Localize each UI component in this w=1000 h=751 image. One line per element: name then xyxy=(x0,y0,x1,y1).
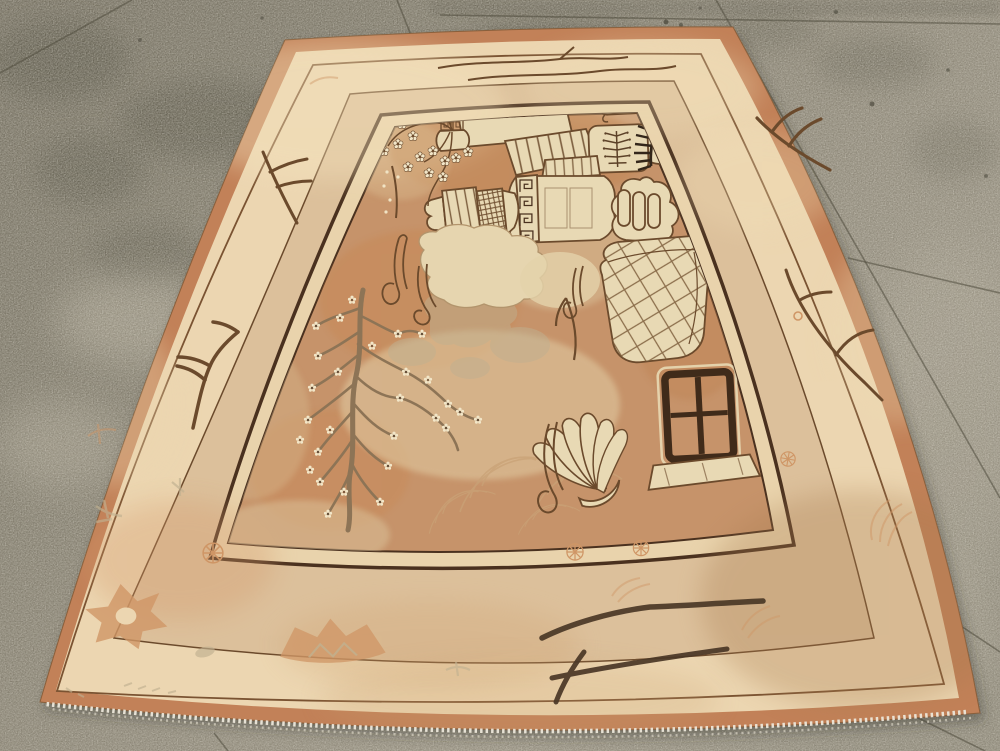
rug-photo-scene xyxy=(0,0,1000,751)
photo-canvas xyxy=(0,0,1000,751)
motif-ruyi-paw xyxy=(612,177,679,242)
rock-wash xyxy=(520,252,600,308)
motif-lattice-basket xyxy=(600,236,710,363)
